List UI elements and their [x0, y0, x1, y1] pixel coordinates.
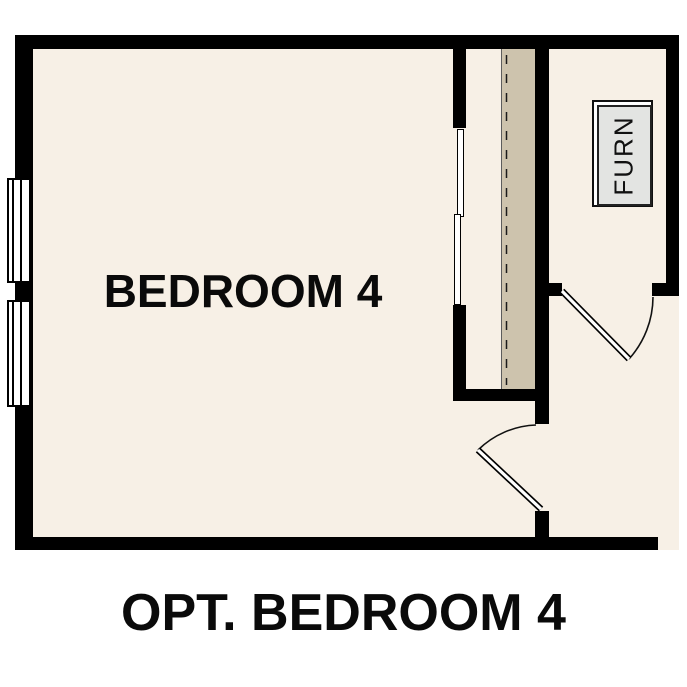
- furnace-label: FURN: [609, 115, 640, 195]
- window-pane-line: [12, 180, 14, 281]
- sliding-door-panel: [454, 214, 461, 305]
- wall-bottom: [15, 537, 658, 550]
- floorplan: FURN BEDROOM 4 OPT. BEDROOM 4: [0, 0, 687, 687]
- wall-entry-door-stub: [535, 511, 549, 537]
- furnace-unit: FURN: [592, 100, 653, 207]
- wall-left: [15, 35, 33, 550]
- wall-closet-right: [535, 49, 549, 401]
- wall-furnace-door-stub-left: [535, 283, 562, 296]
- wall-top: [15, 35, 679, 49]
- sliding-door-panel: [457, 129, 464, 217]
- plan-caption: OPT. BEDROOM 4: [0, 583, 687, 643]
- window-pane-line: [20, 180, 22, 281]
- window-pane-line: [12, 302, 14, 405]
- furnace-unit-inner: FURN: [597, 105, 652, 206]
- wall-closet-divider-lower: [453, 305, 466, 401]
- wall-right: [666, 35, 679, 296]
- closet-shelf: [501, 49, 535, 389]
- window-pane-line: [20, 302, 22, 405]
- window-symbol: [7, 300, 31, 407]
- window-symbol: [7, 178, 31, 283]
- wall-furnace-door-stub-right: [652, 283, 679, 296]
- wall-below-closet: [535, 401, 549, 424]
- wall-closet-divider-upper: [453, 49, 466, 128]
- room-label: BEDROOM 4: [33, 264, 453, 318]
